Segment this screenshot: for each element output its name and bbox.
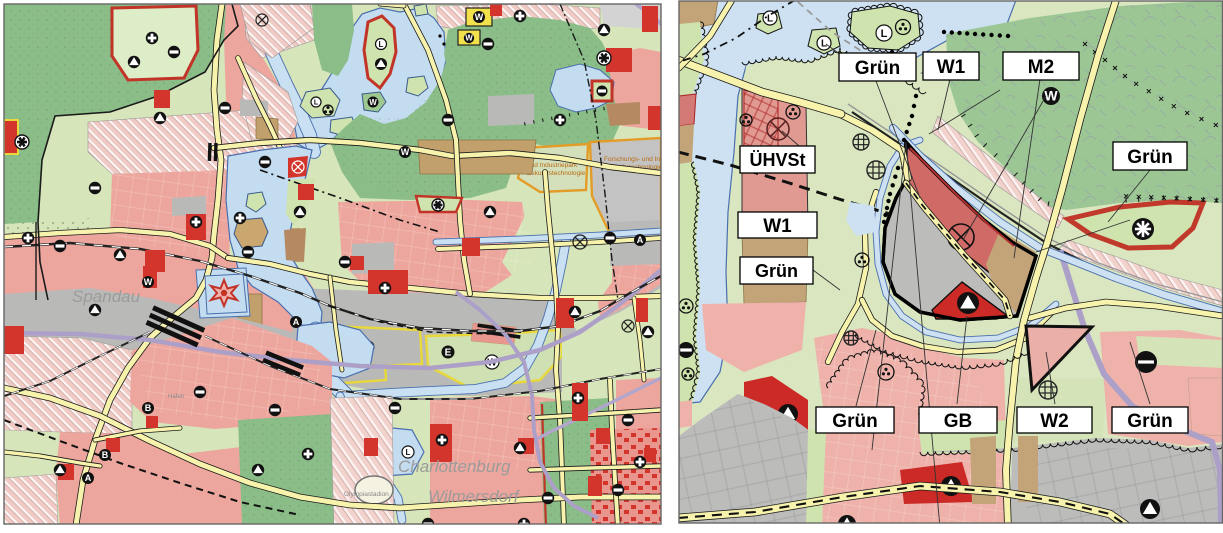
svg-text:L: L	[406, 448, 411, 457]
svg-text:Olympiastadion: Olympiastadion	[344, 491, 389, 498]
svg-text:W: W	[1044, 88, 1058, 104]
svg-text:L: L	[767, 14, 773, 25]
svg-text:W1: W1	[937, 57, 966, 78]
svg-text:L: L	[379, 40, 384, 49]
svg-text:Grün: Grün	[1127, 147, 1172, 168]
svg-text:Charlottenburg: Charlottenburg	[398, 457, 511, 476]
svg-text:A: A	[85, 473, 92, 483]
svg-text:B: B	[145, 403, 152, 413]
svg-text:E: E	[445, 347, 452, 358]
svg-text:W: W	[369, 98, 377, 107]
svg-text:A: A	[637, 235, 644, 245]
svg-text:W2: W2	[1040, 411, 1069, 432]
svg-text:ÜHVSt: ÜHVSt	[749, 150, 805, 170]
svg-text:W: W	[401, 147, 410, 157]
svg-text:Grün: Grün	[832, 411, 877, 432]
svg-text:Wilmersdorf: Wilmersdorf	[428, 487, 521, 506]
svg-text:W: W	[144, 277, 153, 287]
svg-text:W1: W1	[763, 216, 792, 237]
svg-text:und Industriepark: und Industriepark	[527, 162, 578, 169]
svg-text:A: A	[293, 317, 300, 327]
svg-text:Spandau: Spandau	[72, 287, 141, 306]
svg-text:Zukunftstechnologie: Zukunftstechnologie	[527, 170, 586, 177]
svg-text:W: W	[465, 34, 473, 43]
svg-text:Grün: Grün	[755, 261, 798, 281]
svg-text:W: W	[475, 12, 484, 22]
svg-text:GB: GB	[944, 411, 973, 432]
svg-text:L: L	[314, 100, 319, 107]
svg-text:L: L	[881, 28, 888, 40]
svg-text:B: B	[102, 450, 109, 460]
svg-text:Hafen: Hafen	[168, 394, 184, 400]
svg-text:M2: M2	[1028, 57, 1054, 78]
svg-text:Grün: Grün	[1127, 411, 1172, 432]
svg-text:Grün: Grün	[855, 58, 900, 79]
